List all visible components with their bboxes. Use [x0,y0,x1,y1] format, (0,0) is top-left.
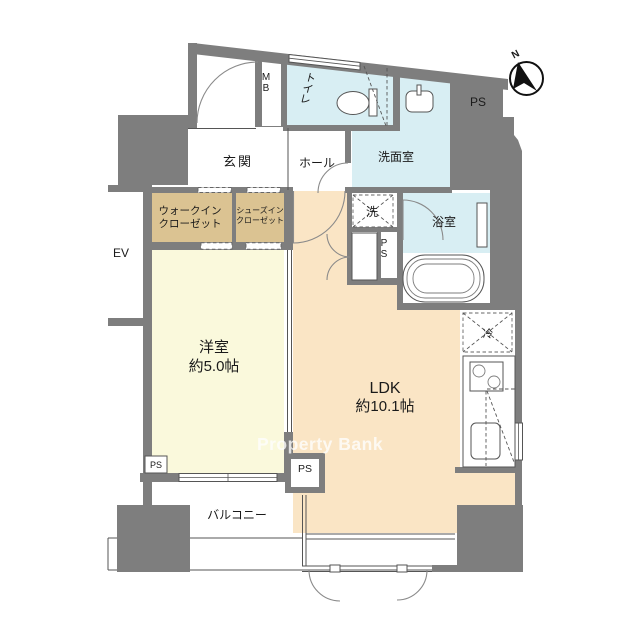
right-mass-top [450,74,522,190]
kitchen-bottom-wall [455,467,515,473]
washbasin-faucet [417,85,421,95]
genkan-label: 玄関 [223,154,253,169]
hall-right-wall [345,128,351,163]
laundry-label: 洗 [366,205,378,219]
western-label-2: 約5.0帖 [189,358,240,375]
bath-label: 浴室 [432,214,456,229]
column-left-wall [347,193,352,285]
bottom-door-arc-left [309,570,340,601]
sic-bottom-opening [246,243,281,249]
stub-left-1 [108,185,145,192]
kitchen-sink [471,423,500,459]
bottom-door-arc-right [397,570,427,600]
bath-right-mass [490,190,522,310]
watermark: Property Bank [257,434,383,454]
sic-top-opening [247,188,280,193]
bottom-door-leaf-right [397,565,407,572]
toilet-bowl [337,92,369,115]
ps-label-mid: PS [379,238,390,260]
bath-left-wall [397,190,403,310]
wic-bottom-opening [201,243,232,249]
bottom-door-leaf-left [330,565,340,572]
entrance-door-arc [197,62,258,123]
block-top-left [118,115,188,185]
ldk-label-2: 約10.1帖 [355,398,414,415]
sic-label-1: シューズイン [236,205,284,215]
toilet-bottom-wall [283,125,397,131]
bath-counter [477,203,487,247]
hall-label: ホール [299,156,335,170]
wic-top-opening [198,188,231,193]
wic-label-2: クローゼット [159,218,222,230]
toilet-tank [369,89,377,116]
kitchen-right-wall-2 [515,460,522,505]
wic-label-1: ウォークイン [159,205,222,217]
balcony-label: バルコニー [207,508,267,522]
compass: N [510,48,543,95]
left-top-wall [188,43,197,128]
mb-right-wall [281,55,287,127]
bath-bottom-wall [397,303,490,310]
ps-label-top-right: PS [470,95,486,109]
kitchen-right-wall [515,310,522,423]
ldk-label-1: LDK [369,380,400,397]
floor-plan: 玄関 ホール トイレ MB 洗面室 浴室 洗 冷 ウォークイン クローゼット シ… [0,0,640,640]
ev-label: EV [113,246,129,260]
washroom-label: 洗面室 [378,149,414,164]
sic-right-wall [284,187,293,250]
ps-label-2: PS [298,463,312,475]
floor-plan-canvas: 玄関 ホール トイレ MB 洗面室 浴室 洗 冷 ウォークイン クローゼット シ… [0,0,640,640]
bottom-thick-wall [432,565,457,572]
sic-label-2: クローゼット [236,215,284,225]
storage-box [352,233,377,280]
compass-n-label: N [510,48,522,61]
western-label-1: 洋室 [199,339,229,356]
toilet-right-wall [393,70,400,131]
ps-label-1: PS [150,460,162,470]
fridge-label: 冷 [483,327,494,340]
block-bottom-left [117,505,190,572]
stub-left-2 [108,318,143,326]
block-bottom-right [457,505,523,572]
mb-label: MB [261,72,272,94]
